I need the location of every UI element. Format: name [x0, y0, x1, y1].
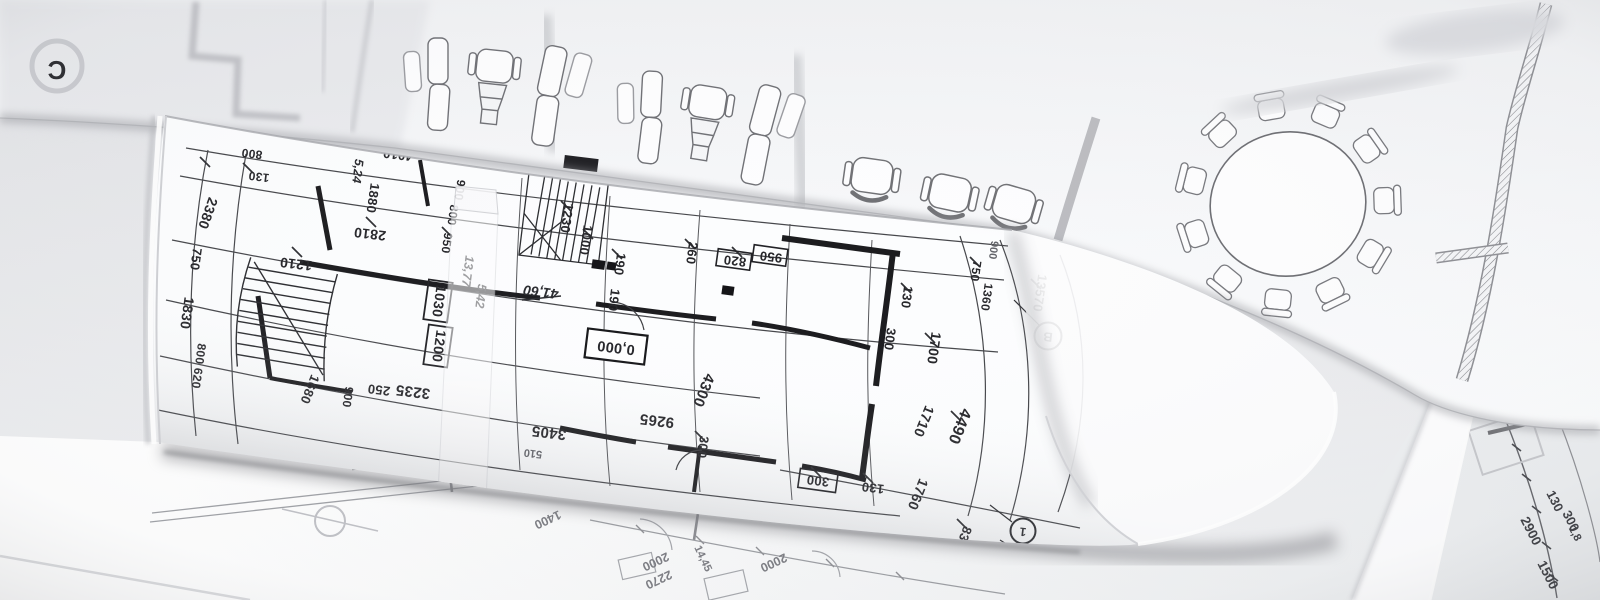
scene-canvas: 1400 2000 2270 14,45 2000 130 300 2900 1…: [0, 0, 1600, 600]
photo-vignette: [0, 0, 1600, 600]
photo-blueprint-rolls: 1400 2000 2270 14,45 2000 130 300 2900 1…: [0, 0, 1600, 600]
